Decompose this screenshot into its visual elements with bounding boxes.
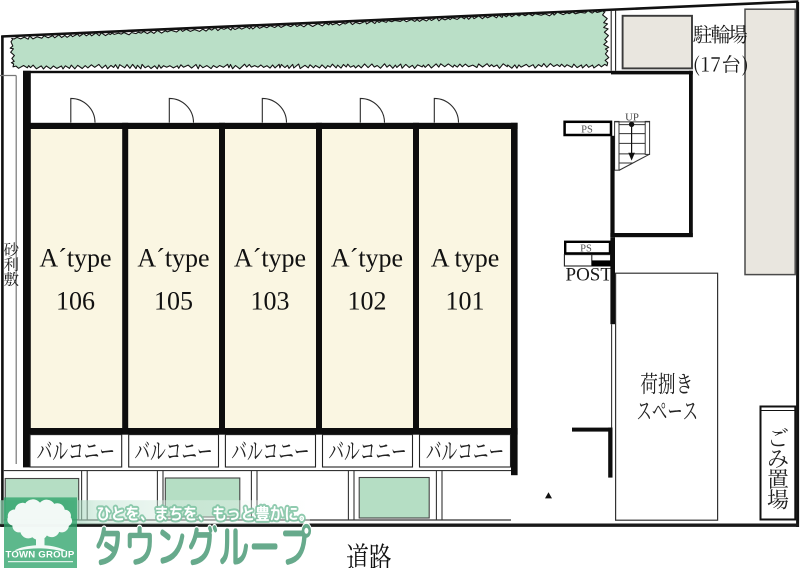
svg-text:A´type: A´type xyxy=(137,244,209,273)
svg-text:A´type: A´type xyxy=(234,244,306,273)
svg-text:A type: A type xyxy=(431,244,500,273)
svg-text:103: 103 xyxy=(251,287,290,316)
svg-text:102: 102 xyxy=(348,287,387,316)
svg-text:TOWN GROUP: TOWN GROUP xyxy=(6,550,75,561)
svg-text:105: 105 xyxy=(154,287,193,316)
svg-text:101: 101 xyxy=(446,287,485,316)
svg-text:PS: PS xyxy=(581,124,593,135)
svg-text:106: 106 xyxy=(56,287,95,316)
svg-text:A´type: A´type xyxy=(331,244,403,273)
svg-text:POST: POST xyxy=(566,265,613,286)
svg-text:A´type: A´type xyxy=(39,244,111,273)
svg-text:PS: PS xyxy=(580,243,592,254)
svg-text:UP: UP xyxy=(625,112,639,124)
